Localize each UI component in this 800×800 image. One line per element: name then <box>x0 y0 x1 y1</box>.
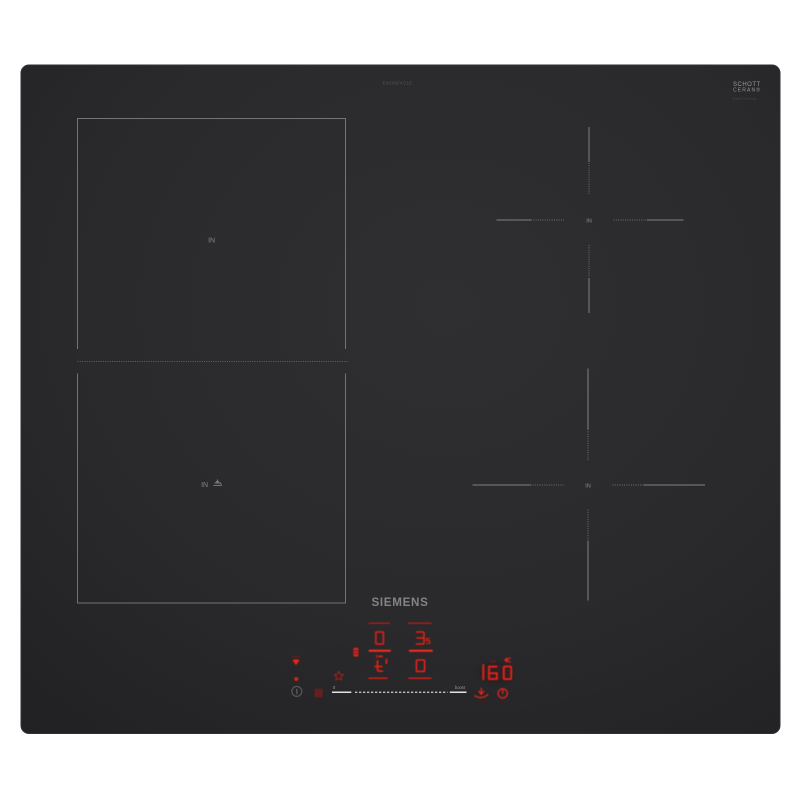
svg-text:0: 0 <box>333 685 336 690</box>
svg-text:IN: IN <box>585 484 591 490</box>
svg-text:CERAN®: CERAN® <box>733 87 761 94</box>
svg-text:min: min <box>490 659 496 663</box>
svg-text:IN: IN <box>208 237 215 244</box>
svg-text:IN: IN <box>586 219 592 225</box>
svg-text:SIEMENS: SIEMENS <box>371 596 428 609</box>
svg-text:boost: boost <box>455 685 466 690</box>
svg-text:EX645FXC1E: EX645FXC1E <box>383 81 413 86</box>
svg-text:IN: IN <box>201 482 208 489</box>
svg-text:Miradur Technology: Miradur Technology <box>733 98 757 101</box>
